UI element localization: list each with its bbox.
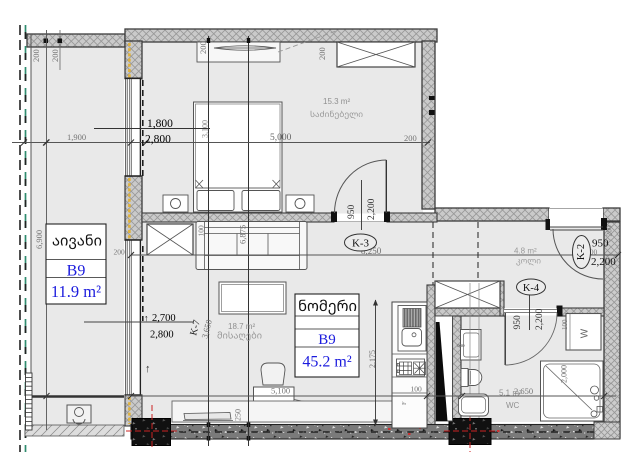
svg-text:200: 200 [317,47,327,60]
svg-text:1,900: 1,900 [67,132,86,142]
svg-text:2,200: 2,200 [535,308,545,330]
svg-text:45.2 m²: 45.2 m² [302,354,351,371]
svg-text:2,200: 2,200 [591,256,616,268]
svg-text:950: 950 [513,315,523,330]
svg-text:11.9 m²: 11.9 m² [51,282,101,301]
svg-text:5,100: 5,100 [271,386,290,396]
svg-text:2,700: 2,700 [152,313,176,324]
svg-text:15.3 m²: 15.3 m² [323,97,350,106]
svg-text:K-3: K-3 [352,238,370,250]
svg-text:2,175: 2,175 [368,350,377,368]
svg-text:5.1 m²: 5.1 m² [499,389,522,398]
svg-text:↑: ↑ [145,363,151,375]
svg-text:2,000: 2,000 [560,365,569,383]
svg-text:B9: B9 [67,263,86,280]
svg-text:W: W [580,328,591,338]
svg-text:2,800: 2,800 [150,330,174,341]
svg-text:5,000: 5,000 [270,133,292,143]
svg-text:6,875: 6,875 [238,225,248,244]
svg-text:18.7 m²: 18.7 m² [228,322,255,331]
svg-text:↑: ↑ [144,313,149,323]
svg-text:950: 950 [347,205,357,220]
svg-text:3,100: 3,100 [201,120,210,138]
svg-text:100: 100 [561,319,569,330]
svg-text:200: 200 [50,49,60,62]
svg-text:100: 100 [197,225,206,237]
svg-text:1,800: 1,800 [147,118,173,130]
svg-text:F: F [401,401,408,405]
svg-text:4.8 m²: 4.8 m² [514,247,537,256]
svg-text:2,200: 2,200 [367,198,377,220]
svg-text:200: 200 [605,225,614,237]
svg-text:2,800: 2,800 [145,134,171,146]
svg-text:6,900: 6,900 [34,230,44,249]
svg-text:B9: B9 [318,332,336,348]
svg-text:K-2: K-2 [576,244,587,260]
svg-text:200: 200 [404,133,417,143]
svg-text:K-4: K-4 [523,283,540,294]
svg-text:250: 250 [234,409,243,421]
svg-text:200: 200 [114,248,126,257]
svg-text:200: 200 [31,49,41,62]
svg-text:WC: WC [506,401,520,410]
svg-text:200: 200 [198,41,208,54]
svg-text:100: 100 [411,385,423,394]
